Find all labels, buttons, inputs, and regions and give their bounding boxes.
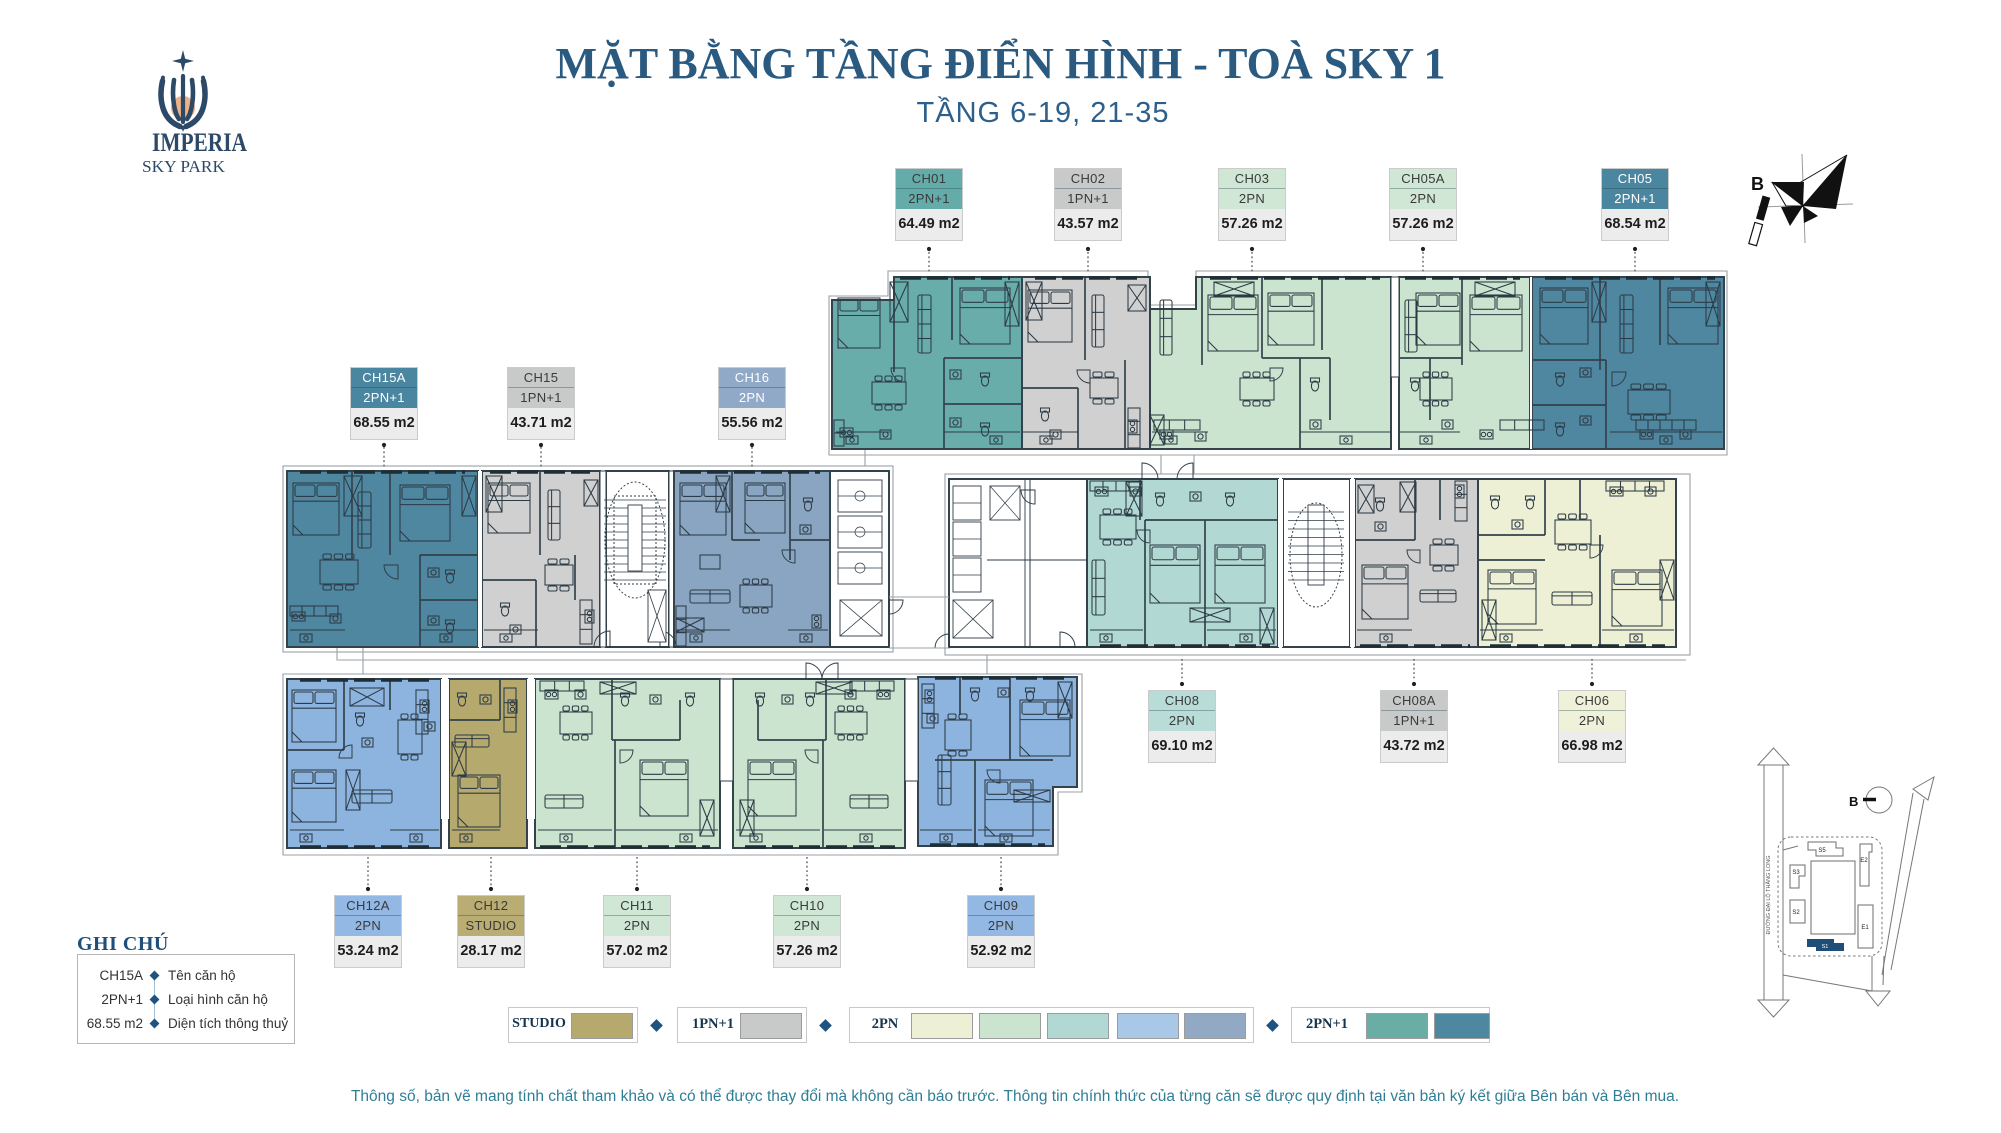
svg-text:S2: S2: [1792, 910, 1800, 916]
svg-text:S1: S1: [1822, 944, 1829, 950]
svg-text:E2: E2: [1860, 858, 1868, 864]
svg-text:E1: E1: [1861, 925, 1869, 931]
svg-text:S5: S5: [1818, 848, 1826, 854]
svg-text:S3: S3: [1792, 870, 1800, 876]
svg-text:ĐƯỜNG ĐẠI LỘ THĂNG LONG: ĐƯỜNG ĐẠI LỘ THĂNG LONG: [1765, 856, 1772, 935]
svg-text:B: B: [1849, 794, 1858, 809]
